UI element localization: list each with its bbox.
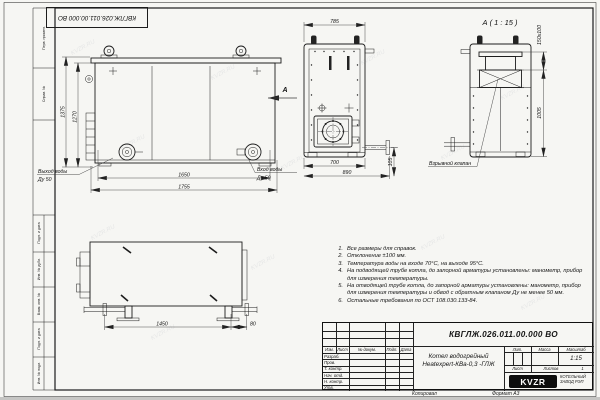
- note-number: 3.: [334, 261, 343, 268]
- drawing-sheet: KVZR.RU KVZR.RU KVZR.RU KVZR.RU KVZR.RU …: [0, 0, 600, 397]
- frame-label-inv-podl: Инв. № подл.: [37, 362, 41, 384]
- dim-1755: 1755: [178, 185, 190, 191]
- note-number: 5.: [334, 283, 343, 298]
- frame-label-podp-data2: Подп. и дата: [37, 328, 41, 349]
- rear-view: [304, 36, 397, 158]
- front-view-dimensions: 1650 1755 1375 1270 Выход воды Ду 50 Вхо…: [37, 57, 297, 193]
- side-pipe: [444, 138, 470, 152]
- rotated-doc-number: КВГЛЖ.026.011.00.000 ВО: [58, 14, 136, 21]
- note-text: На подводящей трубе котла, до запорной а…: [347, 268, 588, 283]
- burner-flange: [314, 116, 359, 147]
- detail-a-view: А ( 1 : 15 ): [444, 18, 531, 157]
- outlet-flange: [119, 144, 143, 160]
- dim-785: 785: [330, 19, 339, 25]
- doc-number: КВГЛЖ.026.011.00.000 ВО: [413, 323, 594, 346]
- dim-1650: 1650: [178, 173, 190, 179]
- dim-890: 890: [343, 170, 352, 176]
- col-data: Дата: [399, 346, 413, 353]
- note-number: 6.: [334, 298, 343, 305]
- explosion-valve: [477, 70, 524, 88]
- lifting-lug: [101, 46, 117, 58]
- company-name-line2: ЗАВОД РЭП: [560, 379, 593, 384]
- note-text: Все размеры для справок.: [347, 246, 417, 253]
- company-logo: KVZR: [509, 375, 557, 388]
- detail-a-title: А ( 1 : 15 ): [481, 18, 518, 27]
- dim-1005: 1005: [537, 107, 543, 119]
- side-view-dimensions: 1450 80: [105, 314, 256, 330]
- frame-label-sprav: Справ. №: [42, 86, 46, 102]
- bolt-dots: [311, 51, 358, 141]
- row-nkontr: Н. контр.: [323, 378, 350, 384]
- note-item: 6.Остальные требования по ОСТ 108.030.13…: [334, 298, 588, 305]
- copied-label: Копировал: [412, 391, 437, 397]
- dim-1450: 1450: [156, 321, 168, 327]
- inlet-label: Вход воды: [257, 167, 282, 173]
- dim-1270: 1270: [73, 111, 79, 123]
- side-view: [77, 242, 258, 321]
- inlet-dn: Ду 50: [256, 176, 271, 182]
- col-izm: Изм.: [323, 346, 336, 353]
- technical-notes: 1.Все размеры для справок. 2.Отклонение …: [334, 246, 588, 305]
- title-block: КВГЛЖ.026.011.00.000 ВО Изм. Лист № доку…: [322, 322, 593, 390]
- sheets-value: 1: [571, 365, 594, 372]
- note-item: 5.На отводящей трубе котла, до запорной …: [334, 283, 588, 298]
- col-doc: № докум.: [349, 346, 385, 353]
- product-name-line2: Heatexpert-КВа-0,3 -ГЛЖ: [422, 361, 494, 369]
- rotated-doc-number-stamp: КВГЛЖ.026.011.00.000 ВО: [46, 7, 148, 28]
- product-name-line1: Котел водогрейный: [429, 353, 489, 361]
- col-list: Лист: [336, 346, 349, 353]
- note-number: 4.: [334, 268, 343, 283]
- col-podp: Подп.: [385, 346, 399, 353]
- rear-view-dimensions: 785 700 890 105: [304, 19, 398, 179]
- sheets-label: Листов: [531, 365, 571, 372]
- note-text: На отводящей трубе котла, до запорной ар…: [347, 283, 588, 298]
- mass-label: Масса: [531, 346, 558, 352]
- frame-label-perv-primen: Перв. примен.: [42, 26, 46, 50]
- detail-a-dimensions: 150х100 1005 Взрывной клапан: [428, 25, 547, 167]
- note-number: 2.: [334, 253, 343, 260]
- company-name: КОТЕЛЬНЫЙ ЗАВОД РЭП: [560, 374, 593, 384]
- dim-80: 80: [250, 321, 256, 327]
- view-arrow-a: А: [268, 87, 297, 101]
- note-number: 1.: [334, 246, 343, 253]
- note-text: Остальные требования по ОСТ 108.030.133-…: [347, 298, 477, 305]
- explosion-valve-label: Взрывной клапан: [429, 160, 471, 167]
- lifting-lug: [233, 46, 249, 58]
- product-name: Котел водогрейный Heatexpert-КВа-0,3 -ГЛ…: [413, 346, 504, 376]
- dim-105: 105: [388, 158, 394, 167]
- note-item: 2.Отклонение ±100 мм.: [334, 253, 588, 260]
- row-prov: Пров.: [323, 359, 350, 365]
- lit-label: Лит.: [504, 346, 531, 352]
- format-label: Формат А3: [492, 391, 519, 397]
- dim-150x100: 150х100: [537, 25, 543, 45]
- frame-label-inv-dubl: Инв. № дубл.: [37, 258, 41, 280]
- side-pipe: [232, 304, 257, 316]
- dim-700: 700: [330, 160, 339, 166]
- view-arrow-label: А: [281, 87, 287, 94]
- note-item: 1.Все размеры для справок.: [334, 246, 588, 253]
- sheet-label: Лист: [504, 365, 531, 372]
- footer-strip: Копировал Формат А3: [0, 390, 600, 398]
- outlet-label: Выход воды: [38, 169, 67, 175]
- frame-label-vzam-inv: Взам. инв. №: [37, 293, 41, 315]
- note-item: 4.На подводящей трубе котла, до запорной…: [334, 268, 588, 283]
- frame-label-podp-data: Подп. и дата: [37, 222, 41, 243]
- outlet-dn: Ду 50: [37, 177, 52, 183]
- note-text: Отклонение ±100 мм.: [347, 253, 406, 260]
- company-logo-text: KVZR: [520, 377, 545, 387]
- inlet-flange: [237, 144, 261, 160]
- front-view: [85, 46, 281, 166]
- dim-1375: 1375: [61, 106, 67, 118]
- scale-value: 1:15: [558, 352, 594, 365]
